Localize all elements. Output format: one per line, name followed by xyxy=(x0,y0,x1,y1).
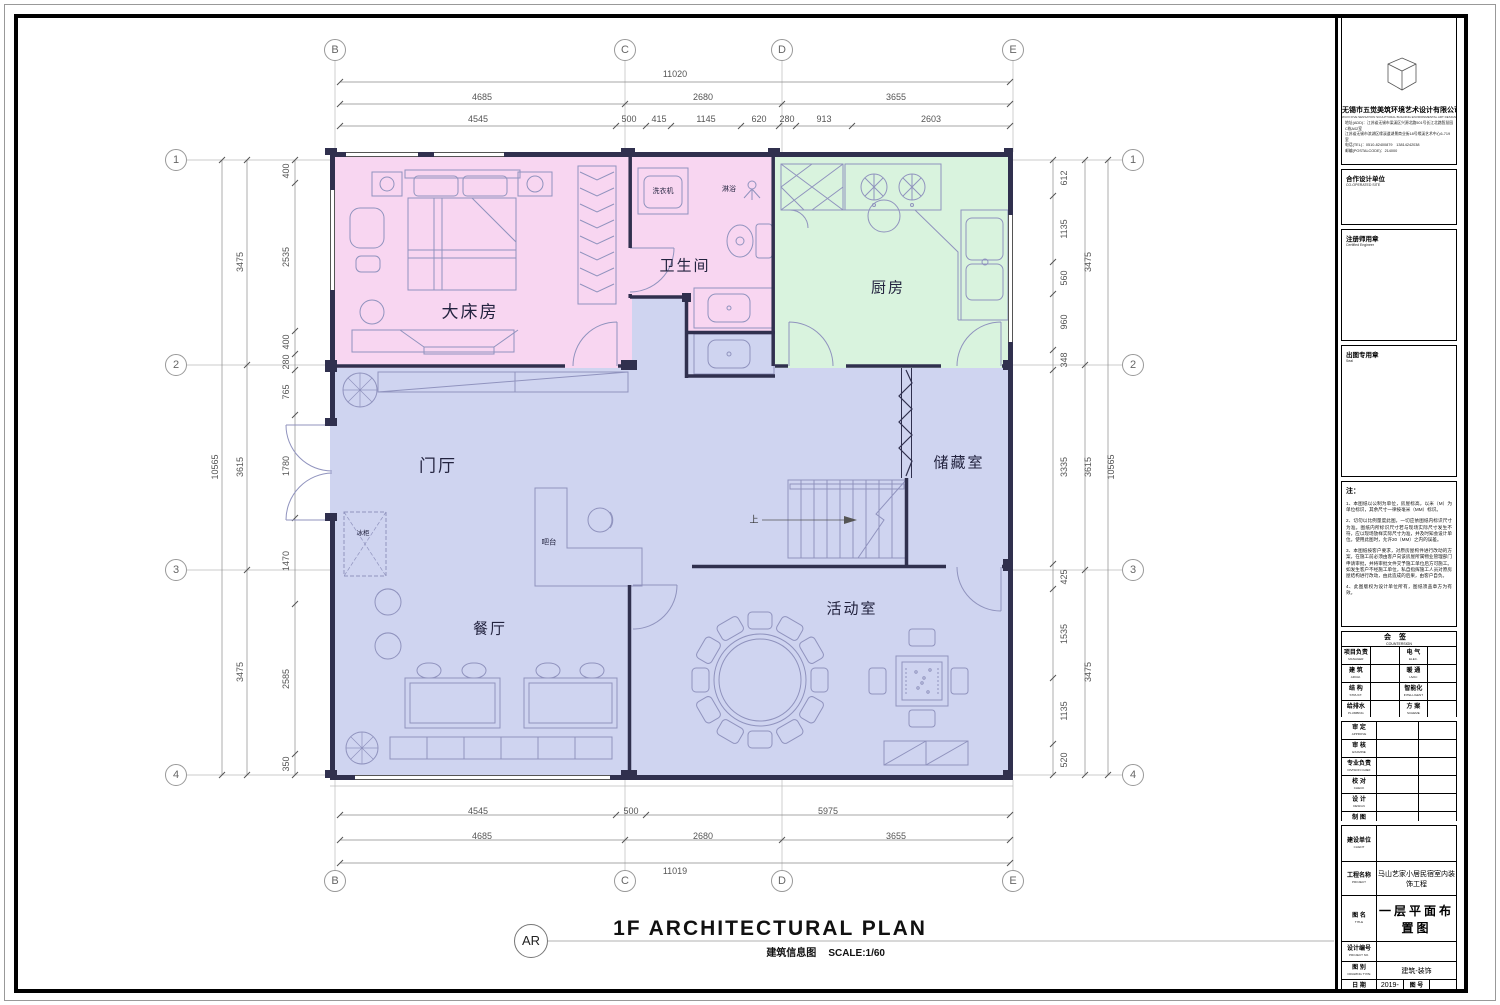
titleblock-divider xyxy=(1335,14,1338,989)
sheet-border xyxy=(14,14,1468,993)
drawing-sheet: B C D E B C D E 1 2 3 4 1 2 3 4 11020 46… xyxy=(0,0,1500,1005)
